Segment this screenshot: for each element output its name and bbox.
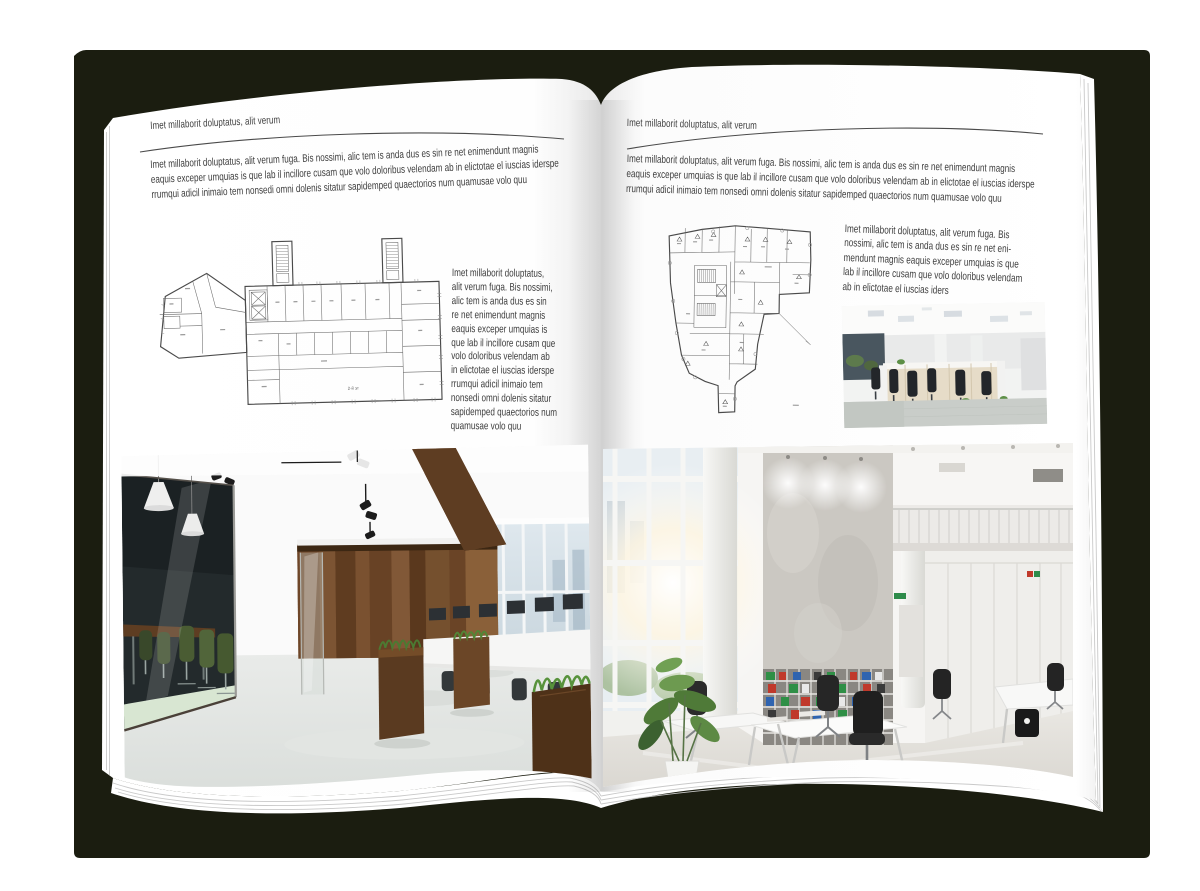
concrete-wall: [762, 443, 893, 675]
photo-office-right: Bright double-height office with window …: [603, 443, 1073, 793]
glass-partition: [300, 552, 323, 694]
interior-walls: [667, 225, 810, 395]
stair-hatch: [699, 269, 714, 315]
corridor-door: [899, 605, 923, 677]
main-block: [245, 281, 442, 404]
floor-plan-right: [645, 213, 848, 426]
photo-office-left: Modern office interior with glass meetin…: [121, 442, 592, 795]
meeting-room: [121, 445, 236, 730]
terrace-line: [779, 313, 811, 344]
outline: [667, 225, 812, 414]
ceiling-strip: [738, 443, 1073, 453]
mezzanine: [893, 443, 1073, 551]
floor-plan-left: 2-й эт: [148, 223, 453, 423]
magazine-spread-mockup: Imet millaborit doluptatus, alit verum I…: [0, 0, 1200, 891]
photo-office-small: Open-plan office with rows of desks, bla…: [842, 302, 1048, 428]
ceiling: [121, 442, 588, 477]
stair-towers: [272, 238, 403, 285]
right-page-side-text: Imet millaborit doluptatus, alit verum f…: [842, 222, 1046, 302]
left-page-side-text: Imet millaborit doluptatus, alit verum f…: [451, 267, 576, 435]
floor-plan-left-label: 2-й эт: [348, 385, 359, 390]
carpet-floor: [844, 398, 1048, 428]
exit-sign: [894, 593, 906, 599]
left-wing: [159, 272, 247, 358]
